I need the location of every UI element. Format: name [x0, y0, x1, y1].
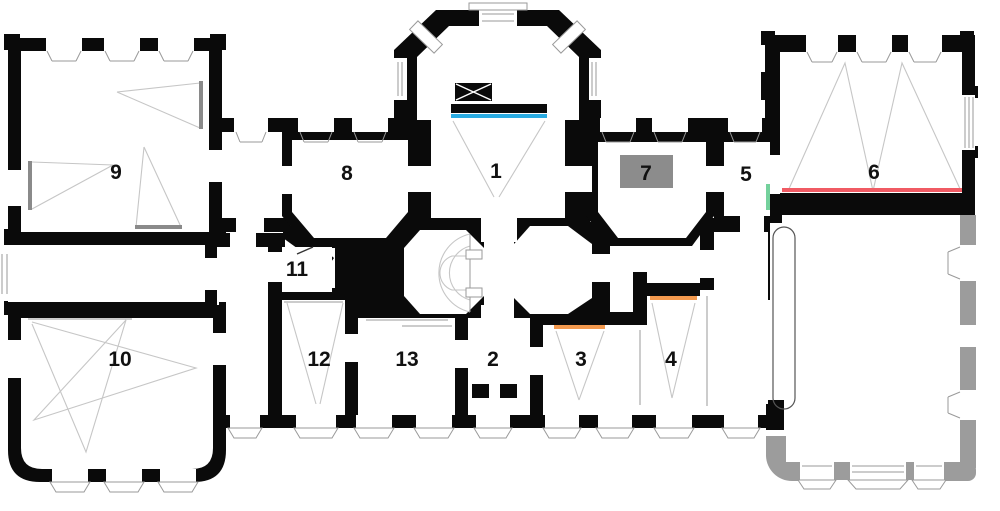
room-label-2: 2 — [487, 348, 499, 371]
orange-accent-line-3 — [554, 325, 605, 329]
green-accent-line — [766, 184, 770, 210]
room-label-4: 4 — [665, 348, 677, 371]
room-2-pillar — [472, 384, 489, 398]
room-label-11: 11 — [286, 258, 309, 281]
room-label-9: 9 — [110, 161, 122, 184]
room-2-pillar — [500, 384, 517, 398]
room-label-5: 5 — [740, 163, 752, 186]
entrance-step — [469, 3, 527, 10]
room-label-10: 10 — [108, 348, 131, 371]
red-accent-line — [782, 188, 962, 192]
room-label-7: 7 — [640, 162, 652, 185]
room-label-1: 1 — [490, 160, 502, 183]
south-sills — [228, 428, 760, 438]
room-label-6: 6 — [868, 161, 880, 184]
black-bar — [451, 104, 547, 113]
room-label-8: 8 — [341, 162, 353, 185]
floor-plan-canvas: 1 2 3 4 5 6 7 8 9 10 11 12 13 — [0, 0, 1000, 511]
cyan-accent-line — [451, 114, 547, 118]
floors-layer — [0, 10, 976, 482]
orange-accent-line-4 — [650, 296, 697, 300]
room-label-12: 12 — [307, 348, 330, 371]
room-label-13: 13 — [395, 348, 418, 371]
floor-plan: 1 2 3 4 5 6 7 8 9 10 11 12 13 — [0, 0, 1000, 511]
room-label-3: 3 — [575, 348, 587, 371]
